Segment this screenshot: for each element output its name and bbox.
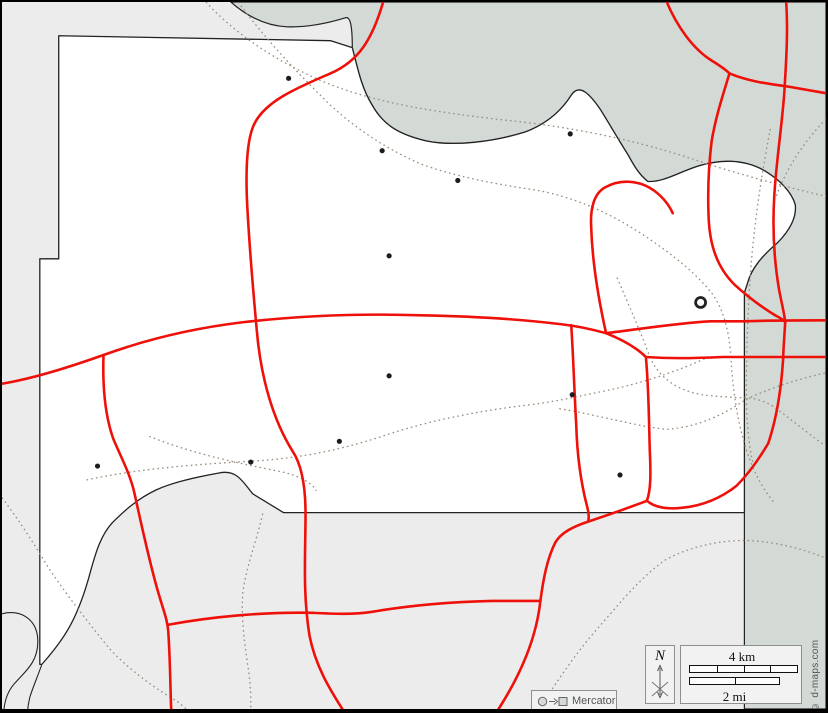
town-dot <box>387 373 392 378</box>
scale-tick <box>717 666 718 672</box>
projection-label: Mercator <box>572 696 615 707</box>
scale-bar-mi <box>689 677 780 685</box>
town-dot <box>248 460 253 465</box>
town-dot <box>387 253 392 258</box>
scale-bar-box: 4 km 2 mi <box>680 645 802 704</box>
town-dot <box>337 439 342 444</box>
scale-tick <box>744 666 745 672</box>
scale-bar-km <box>689 665 798 673</box>
town-dot <box>455 178 460 183</box>
projection-icon <box>537 695 568 708</box>
map-canvas: Mercator N 4 km 2 mi © d-maps.com <box>0 0 828 713</box>
town-dot <box>380 148 385 153</box>
town-dot <box>95 463 100 468</box>
town-dot <box>568 131 573 136</box>
compass-icon <box>648 664 672 700</box>
scale-tick <box>735 678 736 684</box>
county-seat-marker <box>696 297 706 307</box>
scale-mi-label: 2 mi <box>681 690 788 703</box>
square-icon <box>559 698 567 706</box>
county-map-image <box>2 2 826 709</box>
north-arrow-box: N <box>645 645 675 704</box>
town-dot <box>570 392 575 397</box>
projection-legend: Mercator <box>531 690 617 713</box>
attribution-text: © d-maps.com <box>810 628 821 712</box>
town-dot <box>617 472 622 477</box>
circle-icon <box>538 697 546 705</box>
scale-km-label: 4 km <box>681 650 803 663</box>
north-label: N <box>646 649 674 664</box>
scale-tick <box>770 666 771 672</box>
town-dot <box>286 76 291 81</box>
